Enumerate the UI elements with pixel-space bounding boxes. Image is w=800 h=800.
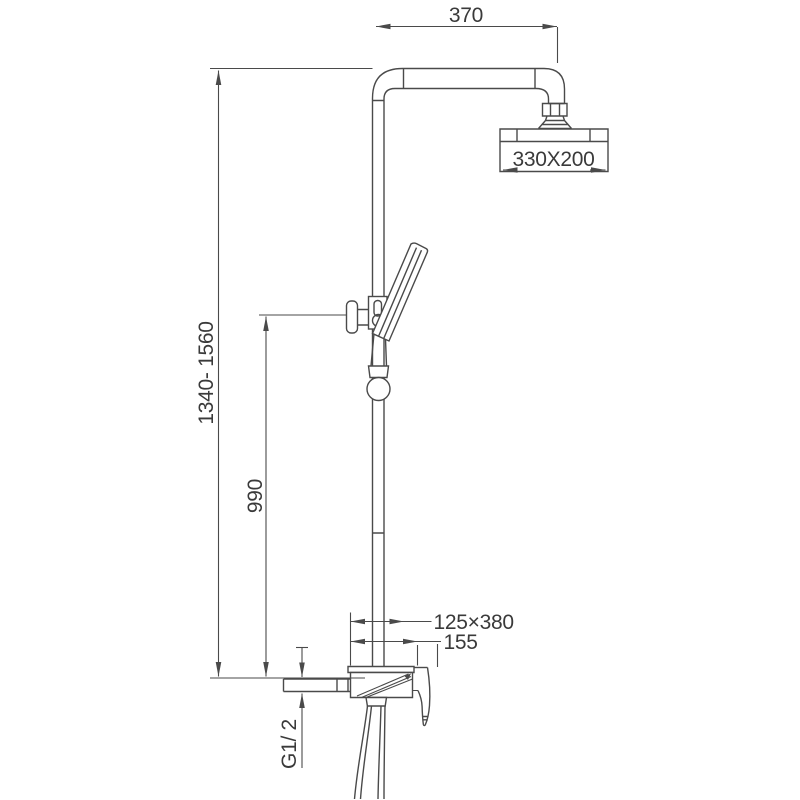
drawing-canvas: 370 330X200 1340- 1560 990 125×380 155 G…: [0, 0, 800, 800]
shower-hose: [355, 698, 387, 800]
dim-hand-shower-height: [259, 315, 347, 677]
inlet-pipe: [284, 679, 351, 692]
dim-total-height: [210, 69, 373, 679]
dim-mixer-size: [351, 613, 432, 666]
hand-shower-ball-joint: [367, 378, 390, 401]
dim-head-size-label: 330X200: [513, 148, 595, 171]
dim-hand-shower-height-label: 990: [244, 479, 267, 513]
dim-mixer-reach: [351, 642, 442, 668]
dim-mixer-reach-label: 155: [444, 631, 478, 654]
shower-arm: [395, 69, 565, 104]
dim-arm-reach: [376, 27, 558, 64]
dim-total-height-label: 1340- 1560: [195, 321, 218, 424]
dim-arm-reach-label: 370: [449, 4, 483, 27]
arm-connector-nut: [539, 104, 572, 129]
dim-inlet-thread-label: G1/ 2: [278, 719, 301, 769]
dimension-labels: 370 330X200 1340- 1560 990 125×380 155 G…: [195, 4, 594, 769]
mixer-valve: [284, 667, 430, 800]
technical-drawing: 370 330X200 1340- 1560 990 125×380 155 G…: [0, 0, 800, 800]
wall-bracket: [347, 301, 369, 333]
shower-column-outline: [284, 69, 609, 800]
mixer-handle: [418, 668, 430, 726]
